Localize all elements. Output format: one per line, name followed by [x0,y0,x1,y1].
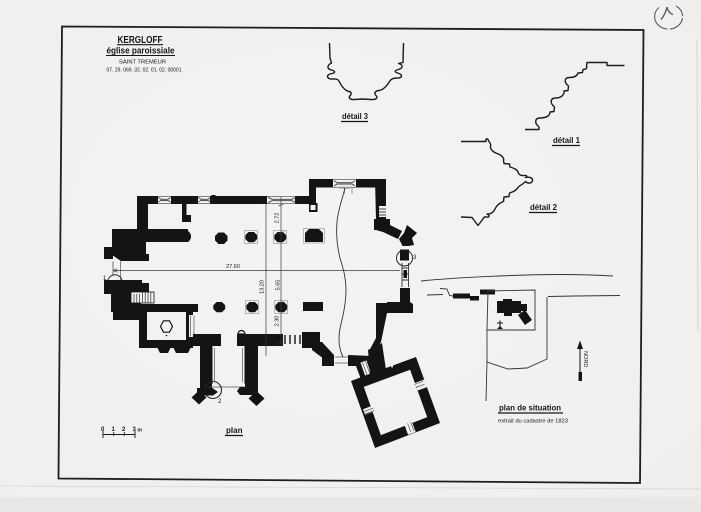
svg-text:plan: plan [226,426,243,435]
svg-text:m: m [138,428,143,434]
svg-text:NORD: NORD [582,351,588,367]
svg-text:plan de situation: plan de situation [499,403,561,413]
svg-text:2.72: 2.72 [275,213,281,224]
svg-text:extrait du cadastre de 18: extrait du cadastre de 1823 [498,419,568,425]
svg-text:27.60: 27.60 [226,264,240,270]
svg-text:détail 1: détail 1 [553,136,580,145]
svg-text:détail 2: détail 2 [530,203,557,212]
svg-text:2.30: 2.30 [275,316,281,327]
svg-text:détail 3: détail 3 [342,112,368,121]
svg-text:07. 29. 069. 32. 02. 01. 02. 0: 07. 29. 069. 32. 02. 01. 02. 00001 [107,68,182,74]
svg-text:église paroissiale: église paroissiale [107,46,175,56]
svg-text:13.20: 13.20 [260,280,266,294]
svg-text:5.65: 5.65 [276,280,282,291]
svg-text:SAINT TREMEUR: SAINT TREMEUR [119,60,166,66]
